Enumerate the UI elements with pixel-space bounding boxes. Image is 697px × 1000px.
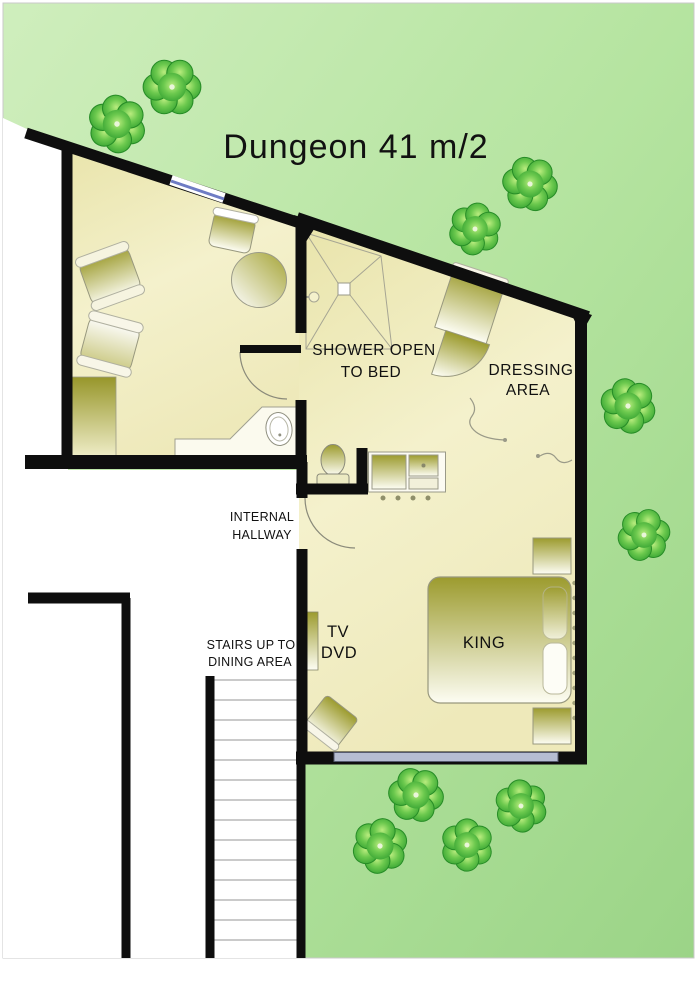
- stairs-label-line2: DINING AREA: [208, 655, 292, 669]
- hallway-label-line2: HALLWAY: [232, 528, 292, 542]
- toilet: [321, 445, 345, 476]
- cabinet: [71, 377, 116, 457]
- nightstand: [533, 708, 571, 744]
- window: [334, 753, 558, 762]
- floor-plan: Dungeon 41 m/2 SHOWER OPEN TO BED DRESSI…: [0, 0, 697, 1000]
- dressing-label-line1: DRESSING: [489, 362, 574, 379]
- king-bed-label: KING: [463, 634, 505, 652]
- pillow: [543, 587, 567, 639]
- shower-label-line1: SHOWER OPEN: [312, 342, 435, 359]
- hallway-label-line1: INTERNAL: [230, 510, 294, 524]
- floor-plan-drawing: Dungeon 41 m/2 SHOWER OPEN TO BED DRESSI…: [0, 0, 697, 1000]
- shower-drain: [338, 283, 350, 295]
- plan-title: Dungeon 41 m/2: [223, 128, 488, 166]
- pillow: [543, 643, 567, 694]
- nightstand: [533, 538, 571, 574]
- tree-icon: [143, 60, 201, 114]
- tv-label-line1: TV: [327, 623, 349, 641]
- tv-label-line2: DVD: [321, 644, 357, 662]
- stairs-label-line1: STAIRS UP TO: [207, 638, 296, 652]
- round-table: [232, 253, 287, 308]
- shower-head-icon: [309, 292, 319, 302]
- shower-label-line2: TO BED: [341, 364, 401, 381]
- tv-unit: [307, 612, 318, 670]
- dressing-label-line2: AREA: [506, 382, 550, 399]
